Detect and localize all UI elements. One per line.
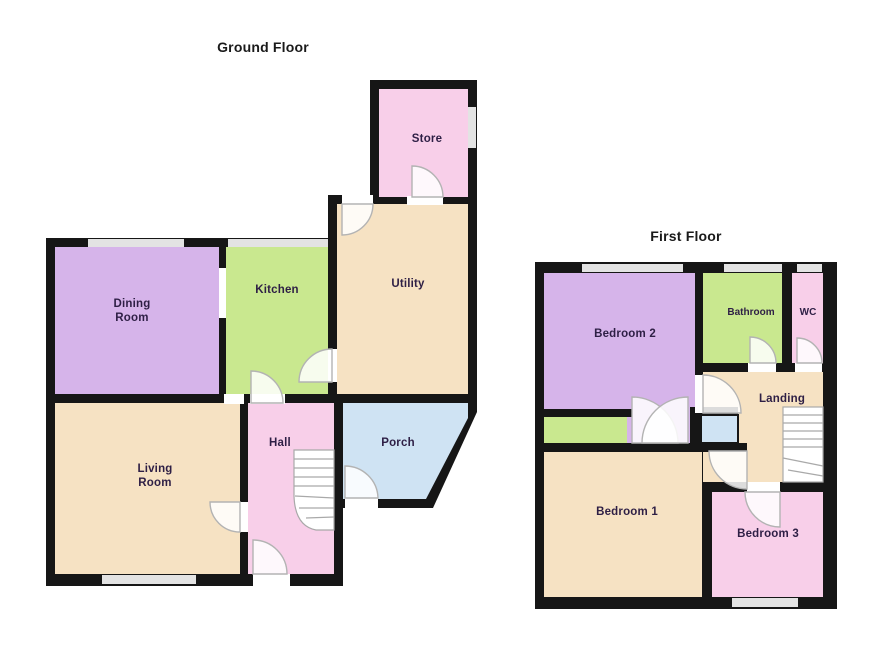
label-bedroom1: Bedroom 1 — [596, 506, 658, 518]
doorgap-porch — [345, 498, 378, 509]
label-hall: Hall — [269, 437, 291, 449]
window-living-bottom — [102, 575, 196, 584]
label-kitchen: Kitchen — [255, 284, 299, 296]
opening-dining-kitchen — [219, 268, 226, 318]
first-floor-plan: First Floor Bedroom 2 Bathroom WC Landin… — [535, 228, 837, 609]
doorgap-bedroom2 — [695, 375, 703, 413]
window-wc-top — [797, 264, 822, 272]
stairs-first — [783, 407, 823, 482]
wall-cupboard-green-top — [544, 409, 632, 417]
window-bathroom-top — [724, 264, 782, 272]
stairs-ground — [294, 450, 334, 530]
doorgap-bedroom3 — [747, 482, 780, 492]
label-porch: Porch — [381, 437, 415, 449]
label-wc: WC — [800, 307, 817, 318]
label-dining-line1: Dining — [114, 298, 151, 310]
label-store: Store — [412, 133, 442, 145]
doorgap-bathroom — [748, 363, 776, 372]
floorplan-canvas: Ground Floor Store Utility Kitchen Dinin… — [0, 0, 886, 646]
window-dining-top — [88, 239, 184, 247]
window-store-right — [468, 107, 476, 148]
ground-floor-plan: Ground Floor Store Utility Kitchen Dinin… — [46, 39, 477, 586]
label-living-line1: Living — [137, 463, 172, 475]
cupboard-blue — [701, 415, 738, 443]
window-bedroom2-top — [582, 264, 683, 272]
label-dining-line2: Room — [115, 312, 148, 324]
label-utility: Utility — [391, 278, 425, 290]
label-landing: Landing — [759, 393, 805, 405]
doorgap-wc — [795, 363, 822, 372]
label-bedroom3: Bedroom 3 — [737, 528, 799, 540]
window-bedroom3-bottom — [732, 598, 798, 607]
label-bathroom: Bathroom — [727, 307, 774, 318]
cupboard-green — [544, 417, 627, 443]
title-first-floor: First Floor — [650, 228, 722, 244]
title-ground-floor: Ground Floor — [217, 39, 309, 55]
window-kitchen-top — [228, 239, 328, 247]
doorgap-front-door — [253, 574, 290, 586]
label-bedroom2: Bedroom 2 — [594, 328, 656, 340]
opening-dining-living — [224, 394, 244, 404]
room-utility — [337, 204, 468, 394]
doorgap-living-hall — [240, 502, 248, 532]
label-living-line2: Room — [138, 477, 171, 489]
wall-cupboard-blue-left — [690, 407, 698, 452]
room-bedroom1 — [544, 452, 702, 597]
